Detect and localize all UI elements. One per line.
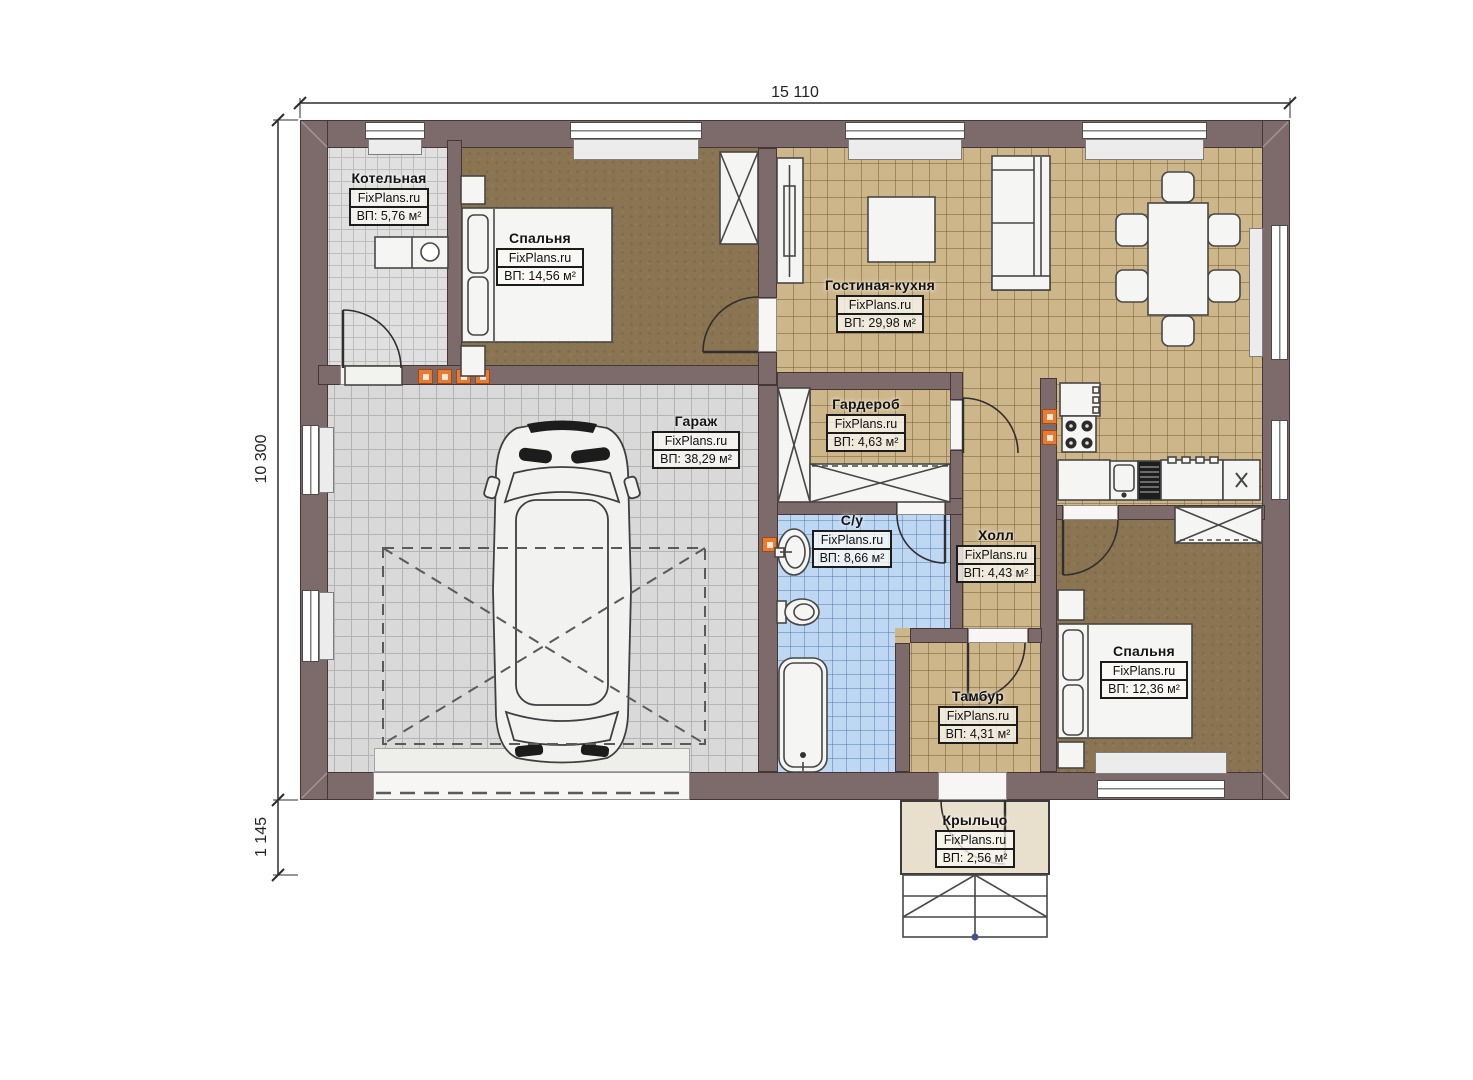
room-brand: FixPlans.ru [814, 532, 891, 550]
door-opening-bedroom1 [758, 298, 777, 352]
room-name: Спальня [1088, 643, 1200, 659]
room-name: Тамбур [925, 688, 1031, 704]
room-label-bedroom2: Спальня FixPlans.ru ВП: 12,36 м² [1088, 643, 1200, 699]
garage-door-opening [373, 772, 690, 800]
room-brand: FixPlans.ru [1102, 663, 1186, 681]
window-sill [573, 139, 699, 160]
window-bedroom1 [570, 122, 702, 139]
window-sill [319, 427, 334, 493]
room-label-wardrobe: Гардероб FixPlans.ru ВП: 4,63 м² [810, 396, 922, 452]
room-brand: FixPlans.ru [828, 416, 905, 434]
room-name: Крыльцо [920, 812, 1030, 828]
wall-bedroom1-living-a [758, 148, 777, 298]
window-sill [319, 592, 334, 660]
room-label-bedroom1: Спальня FixPlans.ru ВП: 14,56 м² [482, 230, 598, 286]
room-brand: FixPlans.ru [937, 832, 1014, 850]
window-living-2 [1082, 122, 1207, 139]
floor-plan: 15 110 10 300 1 145 Котельная FixPlans.r… [0, 0, 1473, 1080]
room-label-vestibule: Тамбур FixPlans.ru ВП: 4,31 м² [925, 688, 1031, 744]
window-garage-1 [302, 425, 319, 495]
wall-vestibule-top-b [1028, 628, 1042, 643]
room-label-boiler: Котельная FixPlans.ru ВП: 5,76 м² [334, 170, 444, 226]
window-sill [848, 139, 962, 160]
wall-garage-right [758, 385, 778, 772]
radiator-marker-icon [418, 369, 433, 384]
garage-door-apron [374, 748, 690, 772]
door-opening-vestibule [968, 628, 1028, 643]
wall-bedroom1-living-b [758, 352, 777, 385]
door-opening-bathroom [897, 498, 945, 515]
room-area: ВП: 4,43 м² [958, 565, 1035, 581]
room-name: Гостиная-кухня [815, 277, 945, 293]
room-name: Гараж [638, 413, 754, 429]
room-name: Котельная [334, 170, 444, 186]
radiator-marker-icon [762, 537, 777, 552]
window-garage-2 [302, 590, 319, 662]
window-sill [1249, 228, 1263, 357]
room-label-garage: Гараж FixPlans.ru ВП: 38,29 м² [638, 413, 754, 469]
room-name: С/у [800, 512, 904, 528]
window-sill [1085, 139, 1204, 160]
room-brand: FixPlans.ru [958, 547, 1035, 565]
room-area: ВП: 4,63 м² [828, 434, 905, 450]
door-opening-wardrobe [950, 400, 963, 450]
room-label-porch: Крыльцо FixPlans.ru ВП: 2,56 м² [920, 812, 1030, 868]
dimension-height: 10 300 [253, 429, 271, 489]
window-kitchen [1271, 420, 1288, 500]
wall-living-wardrobe [777, 372, 963, 390]
window-dining [1271, 225, 1288, 360]
window-bedroom2 [1097, 780, 1225, 798]
room-area: ВП: 5,76 м² [351, 208, 428, 224]
wall-wardrobe-hall-a [950, 372, 963, 400]
wall-bath-top-stub [945, 498, 963, 515]
window-sill [1095, 752, 1227, 774]
wall-vestibule-top-a [910, 628, 968, 643]
room-area: ВП: 2,56 м² [937, 850, 1014, 866]
floor-bedroom2 [1055, 505, 1262, 772]
window-boiler [365, 122, 425, 139]
room-area: ВП: 29,98 м² [838, 315, 922, 331]
room-label-living: Гостиная-кухня FixPlans.ru ВП: 29,98 м² [815, 277, 945, 333]
door-opening-entrance [938, 772, 1007, 800]
radiator-marker-icon [1042, 409, 1057, 424]
wall-bath-vestibule [895, 643, 910, 772]
wall-boiler-bedroom1 [447, 140, 462, 368]
dimension-porch: 1 145 [253, 812, 271, 862]
window-living-1 [845, 122, 965, 139]
door-opening-bedroom2 [1063, 505, 1118, 520]
room-brand: FixPlans.ru [940, 708, 1017, 726]
room-name: Гардероб [810, 396, 922, 412]
wall-bedroom2-top-b [1118, 505, 1265, 520]
room-label-bathroom: С/у FixPlans.ru ВП: 8,66 м² [800, 512, 904, 568]
radiator-marker-icon [456, 369, 471, 384]
room-brand: FixPlans.ru [498, 250, 582, 268]
room-area: ВП: 8,66 м² [814, 550, 891, 566]
room-area: ВП: 14,56 м² [498, 268, 582, 284]
radiator-marker-icon [437, 369, 452, 384]
radiator-marker-icon [1042, 430, 1057, 445]
dimension-width: 15 110 [745, 84, 845, 102]
room-area: ВП: 38,29 м² [654, 451, 738, 467]
room-name: Спальня [482, 230, 598, 246]
window-sill [368, 139, 422, 155]
room-brand: FixPlans.ru [654, 433, 738, 451]
room-name: Холл [950, 527, 1042, 543]
room-area: ВП: 12,36 м² [1102, 681, 1186, 697]
door-opening-boiler [340, 365, 400, 385]
room-area: ВП: 4,31 м² [940, 726, 1017, 742]
room-brand: FixPlans.ru [351, 190, 428, 208]
porch-steps [903, 875, 1047, 941]
room-brand: FixPlans.ru [838, 297, 922, 315]
radiator-marker-icon [475, 369, 490, 384]
room-label-hall: Холл FixPlans.ru ВП: 4,43 м² [950, 527, 1042, 583]
